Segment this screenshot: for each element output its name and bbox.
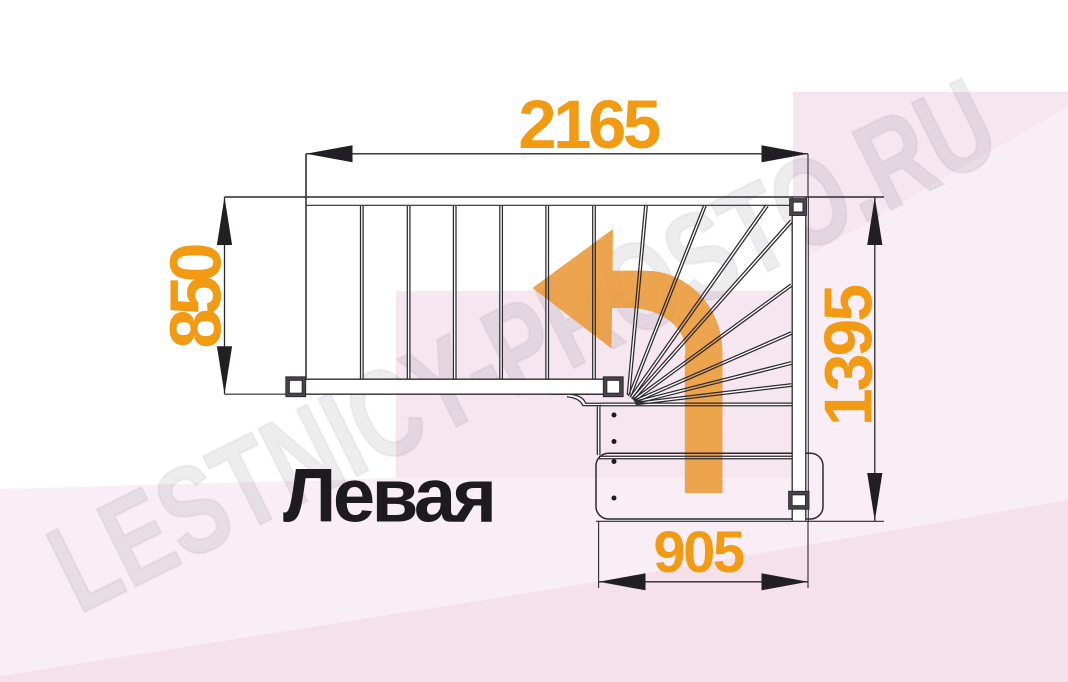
svg-text:850: 850 xyxy=(157,244,237,348)
svg-text:1395: 1395 xyxy=(810,286,886,426)
svg-text:2165: 2165 xyxy=(518,86,660,163)
svg-text:905: 905 xyxy=(653,520,744,585)
svg-text:Левая: Левая xyxy=(283,454,493,539)
